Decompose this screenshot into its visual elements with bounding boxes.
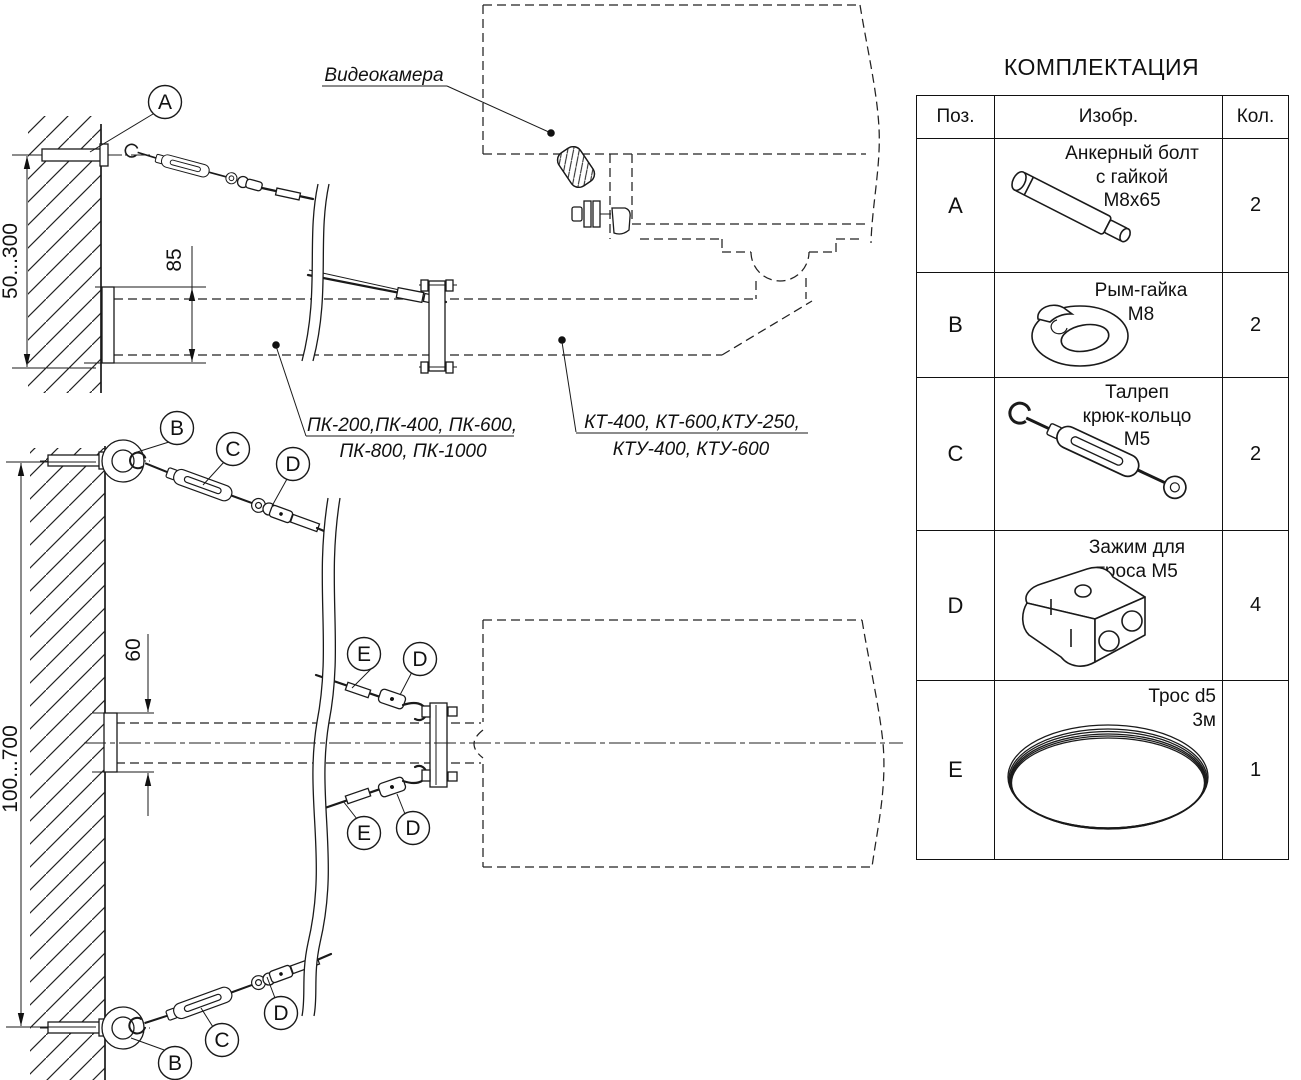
callout-d-mid-top: D	[400, 643, 437, 696]
lower-view: 100...700 60 B C D E	[0, 412, 903, 1080]
callout-a: A	[90, 86, 182, 153]
camera-label: Видеокамера	[322, 65, 555, 137]
cable-mid-bottom	[316, 766, 426, 811]
row-a-desc-line1: Анкерный болт	[1046, 142, 1218, 166]
row-d-qty: 4	[1223, 531, 1288, 681]
row-a-qty: 2	[1223, 139, 1288, 273]
cable-clamp-top-left	[269, 505, 294, 524]
row-e-qty: 1	[1223, 681, 1288, 859]
turnbuckle-upper	[124, 143, 239, 186]
callout-e-mid-top-letter: E	[357, 643, 371, 666]
callout-b-top-letter: B	[170, 417, 184, 440]
cable-clamp-mid-bottom	[377, 776, 406, 798]
row-c-pos: C	[917, 378, 995, 531]
callout-d-top: D	[272, 448, 310, 507]
cable-clamp-icon	[999, 557, 1169, 675]
callout-c-top-letter: C	[225, 438, 240, 461]
callout-c-bottom-letter: C	[214, 1029, 229, 1052]
camera-label-text: Видеокамера	[324, 65, 443, 86]
camera-outline-lower	[451, 620, 884, 867]
dim-lower-offset-value: 100...700	[0, 725, 22, 813]
row-c-qty: 2	[1223, 378, 1288, 531]
turnbuckle-bottom	[127, 972, 268, 1037]
dim-upper-offset-value: 50...300	[0, 223, 22, 299]
callout-b-top: B	[134, 412, 194, 454]
upper-view: 50...300 85 A Видеокамера ПК-200,П	[0, 5, 879, 462]
col-header-image: Изобр.	[995, 96, 1223, 139]
col-header-pos: Поз.	[917, 96, 995, 139]
pole-lower	[104, 713, 449, 772]
col-header-qty: Кол.	[1223, 96, 1288, 139]
row-d-desc-line1: Зажим для	[1056, 536, 1218, 560]
dim-upper-plate-value: 85	[163, 248, 186, 271]
callout-c-bottom: C	[201, 1008, 239, 1057]
bracket-models-line2: ПК-800, ПК-1000	[339, 441, 487, 462]
row-e-image-cell: Трос d5 3м	[995, 681, 1223, 859]
row-b-pos: B	[917, 273, 995, 378]
callout-d-bottom-letter: D	[273, 1002, 288, 1025]
drawing-sheet: 50...300 85 A Видеокамера ПК-200,П	[0, 0, 1301, 1080]
callout-c-top: C	[203, 433, 250, 486]
break-line-upper	[302, 184, 329, 361]
row-c-image-cell: Талреп крюк-кольцо М5	[995, 378, 1223, 531]
mount-models-line1: КТ-400, КТ-600,КТУ-250,	[584, 412, 800, 433]
callout-e-mid-top: E	[348, 638, 381, 689]
mount-models-line2: КТУ-400, КТУ-600	[613, 439, 770, 460]
eye-nut-icon	[1005, 289, 1155, 374]
callout-b-bottom: B	[131, 1038, 192, 1080]
row-d-pos: D	[917, 531, 995, 681]
row-a-pos: A	[917, 139, 995, 273]
row-b-image-cell: Рым-гайка М8	[995, 273, 1223, 378]
callout-b-bottom-letter: B	[168, 1052, 182, 1075]
break-line-lower	[302, 498, 340, 1016]
camera-knob	[554, 143, 598, 191]
turnbuckle-top	[128, 450, 269, 515]
row-b-qty: 2	[1223, 273, 1288, 378]
parts-table: Поз. Изобр. Кол. A Анкерный болт с гайко…	[916, 95, 1289, 860]
cable-coil-icon	[999, 703, 1217, 855]
cable-clamp-bottom-left	[269, 965, 294, 984]
dim-lower-plate-value: 60	[122, 638, 145, 661]
row-a-image-cell: Анкерный болт с гайкой М8х65	[995, 139, 1223, 273]
turnbuckle-icon	[997, 384, 1219, 526]
wall-hatch-lower	[30, 448, 105, 1080]
pole-bracket-lower	[422, 703, 457, 787]
callout-a-letter: A	[158, 91, 172, 114]
bracket-models-line1: ПК-200,ПК-400, ПК-600,	[307, 415, 517, 436]
callout-d-mid-bottom-letter: D	[405, 817, 420, 840]
callout-e-mid-bottom: E	[343, 801, 381, 850]
callout-d-mid-top-letter: D	[412, 648, 427, 671]
row-e-pos: E	[917, 681, 995, 859]
camera-mount-bolt	[572, 201, 630, 234]
anchor-bolt-icon	[997, 163, 1187, 268]
camera-outline-upper	[483, 5, 879, 355]
callout-d-top-letter: D	[285, 453, 300, 476]
row-d-image-cell: Зажим для троса М5	[995, 531, 1223, 681]
callout-d-mid-bottom: D	[397, 794, 430, 845]
callout-e-mid-bottom-letter: E	[357, 822, 371, 845]
parts-table-title: КОМПЛЕКТАЦИЯ	[916, 54, 1287, 81]
